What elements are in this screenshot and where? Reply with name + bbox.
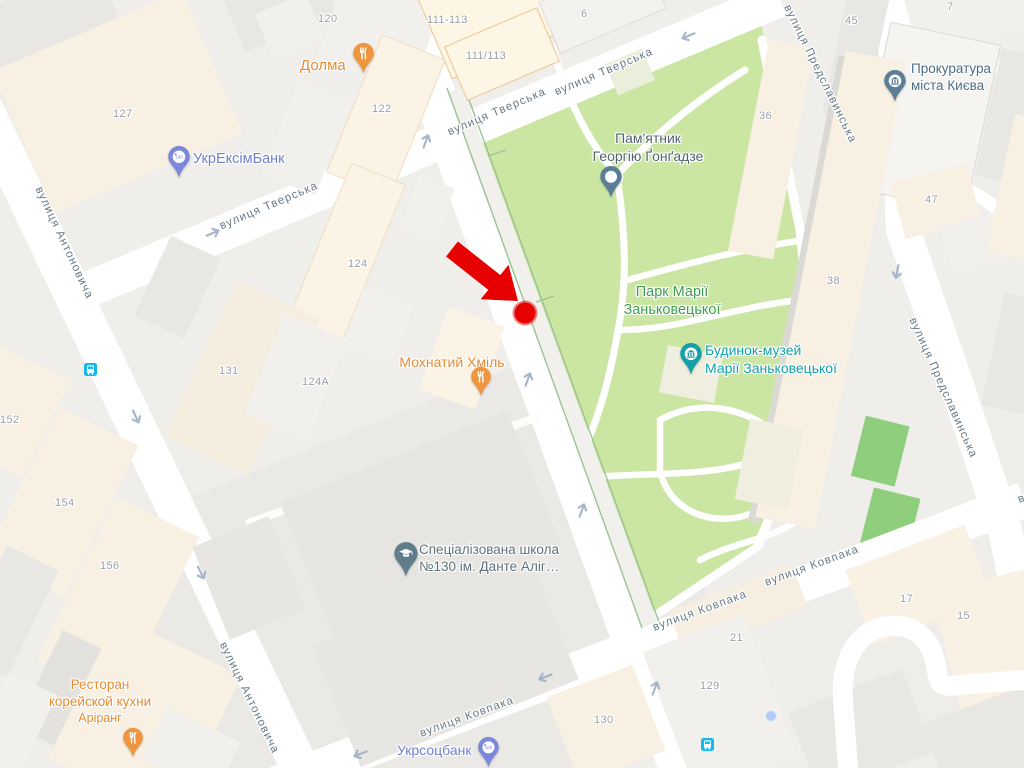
- building-number: 47: [925, 194, 938, 206]
- building-number: 154: [55, 497, 75, 509]
- bank-pin-icon[interactable]: [167, 145, 191, 179]
- map-base-graphics: [0, 0, 1024, 768]
- poi-label-line: №130 ім. Данте Аліг…: [419, 558, 559, 575]
- building-number: 122: [372, 103, 392, 115]
- poi-label-line: Спеціалізована школа: [419, 541, 559, 558]
- building-number: 152: [0, 414, 20, 426]
- poi-label-line: Георгію Ґонґадзе: [593, 148, 704, 166]
- poi-label-line: Марії Заньковецької: [705, 360, 837, 378]
- monument-pin-icon[interactable]: [599, 165, 623, 199]
- building-number: 127: [113, 108, 133, 120]
- poi-label-park[interactable]: Парк Марії Заньковецької: [623, 283, 720, 319]
- poi-label-line: корейской кухни: [49, 693, 151, 710]
- restaurant-pin-icon[interactable]: [352, 42, 375, 75]
- poi-label-ukrsotsbank[interactable]: Укрсоцбанк: [397, 742, 471, 760]
- museum-pin-icon[interactable]: [679, 342, 703, 376]
- poi-label-school[interactable]: Спеціалізована школа №130 ім. Данте Аліг…: [419, 541, 559, 575]
- poi-label-museum[interactable]: Будинок-музей Марії Заньковецької: [705, 342, 837, 377]
- bus-stop-icon[interactable]: [84, 363, 97, 376]
- bus-stop-icon[interactable]: [701, 738, 714, 751]
- building-number: 156: [100, 560, 120, 572]
- building-number: 124: [348, 258, 368, 270]
- poi-label-monument[interactable]: Пам'ятник Георгію Ґонґадзе: [593, 130, 704, 165]
- poi-label-line: міста Києва: [911, 78, 991, 95]
- building-number: 21: [730, 632, 743, 644]
- poi-label-line: Прокуратура: [911, 61, 991, 78]
- poi-label-line: Заньковецької: [623, 301, 720, 319]
- building-number: 36: [759, 110, 772, 122]
- bank-pin-icon[interactable]: [477, 736, 500, 768]
- building-number: 129: [700, 680, 720, 692]
- government-pin-icon[interactable]: [883, 69, 907, 103]
- poi-label-line: Парк Марії: [623, 283, 720, 301]
- poi-label-line: Аріранг: [49, 710, 151, 727]
- poi-label-line: Ресторан: [49, 676, 151, 693]
- poi-label-dolma[interactable]: Долма: [300, 57, 346, 75]
- building-number: 15: [957, 610, 970, 622]
- poi-label-ariran[interactable]: Ресторан корейской кухни Аріранг: [49, 676, 151, 727]
- building-number: 7: [947, 1, 954, 13]
- transit-stop-dot: [766, 711, 776, 721]
- poi-label-line: Пам'ятник: [593, 130, 704, 148]
- restaurant-pin-icon[interactable]: [470, 366, 492, 397]
- building-number: 130: [594, 714, 614, 726]
- building-number: 38: [827, 275, 840, 287]
- building-number: 120: [318, 13, 338, 25]
- poi-label-prokuratura[interactable]: Прокуратура міста Києва: [911, 61, 991, 94]
- building-number: 6: [581, 8, 588, 20]
- school-pin-icon[interactable]: [393, 541, 419, 578]
- building-number: 111/113: [466, 50, 506, 62]
- building-number: 131: [219, 365, 239, 377]
- building-number: 17: [900, 593, 913, 605]
- building-number: 124A: [302, 376, 329, 388]
- map-canvas[interactable]: 100: [0, 0, 1024, 768]
- poi-label-line: Будинок-музей: [705, 342, 837, 360]
- building-number: 45: [845, 15, 858, 27]
- building-number: 111-113: [427, 14, 468, 26]
- restaurant-pin-icon[interactable]: [122, 727, 144, 758]
- poi-label-ukreximbank[interactable]: УкрЕксімБанк: [193, 151, 285, 169]
